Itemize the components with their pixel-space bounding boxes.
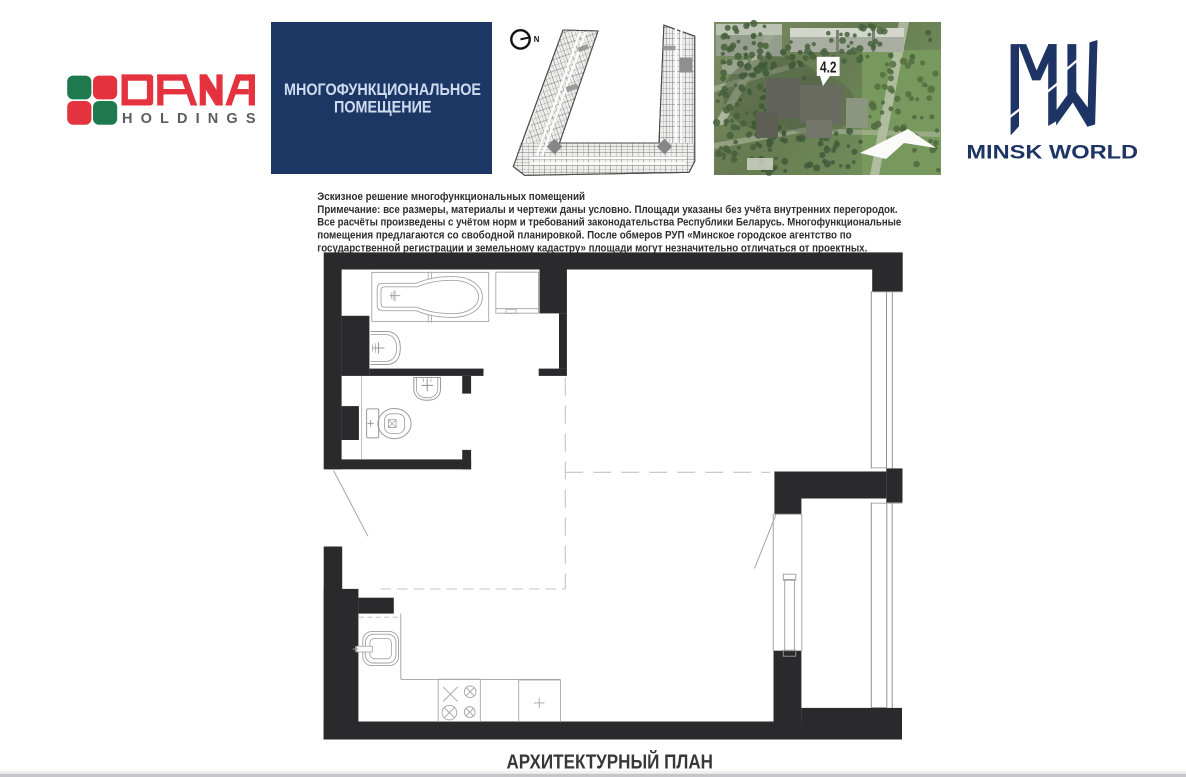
svg-text:помещения предлагаются со своб: помещения предлагаются со свободной план… — [317, 230, 851, 242]
svg-text:Эскизное решение многофункцион: Эскизное решение многофункциональных пом… — [317, 191, 585, 203]
svg-text:HOLDINGS: HOLDINGS — [122, 111, 256, 127]
svg-text:MINSK WORLD: MINSK WORLD — [966, 142, 1138, 164]
svg-text:N: N — [534, 35, 540, 44]
svg-text:4.2: 4.2 — [820, 60, 837, 77]
svg-text:Примечание: все размеры, матер: Примечание: все размеры, материалы и чер… — [317, 204, 897, 216]
svg-text:Все расчёты произведены с учёт: Все расчёты произведены с учётом норм и … — [317, 217, 901, 229]
svg-text:ПОМЕЩЕНИЕ: ПОМЕЩЕНИЕ — [334, 99, 432, 117]
svg-text:МНОГОФУНКЦИОНАЛЬНОЕ: МНОГОФУНКЦИОНАЛЬНОЕ — [284, 81, 481, 99]
svg-text:АРХИТЕКТУРНЫЙ ПЛАН: АРХИТЕКТУРНЫЙ ПЛАН — [507, 750, 714, 774]
